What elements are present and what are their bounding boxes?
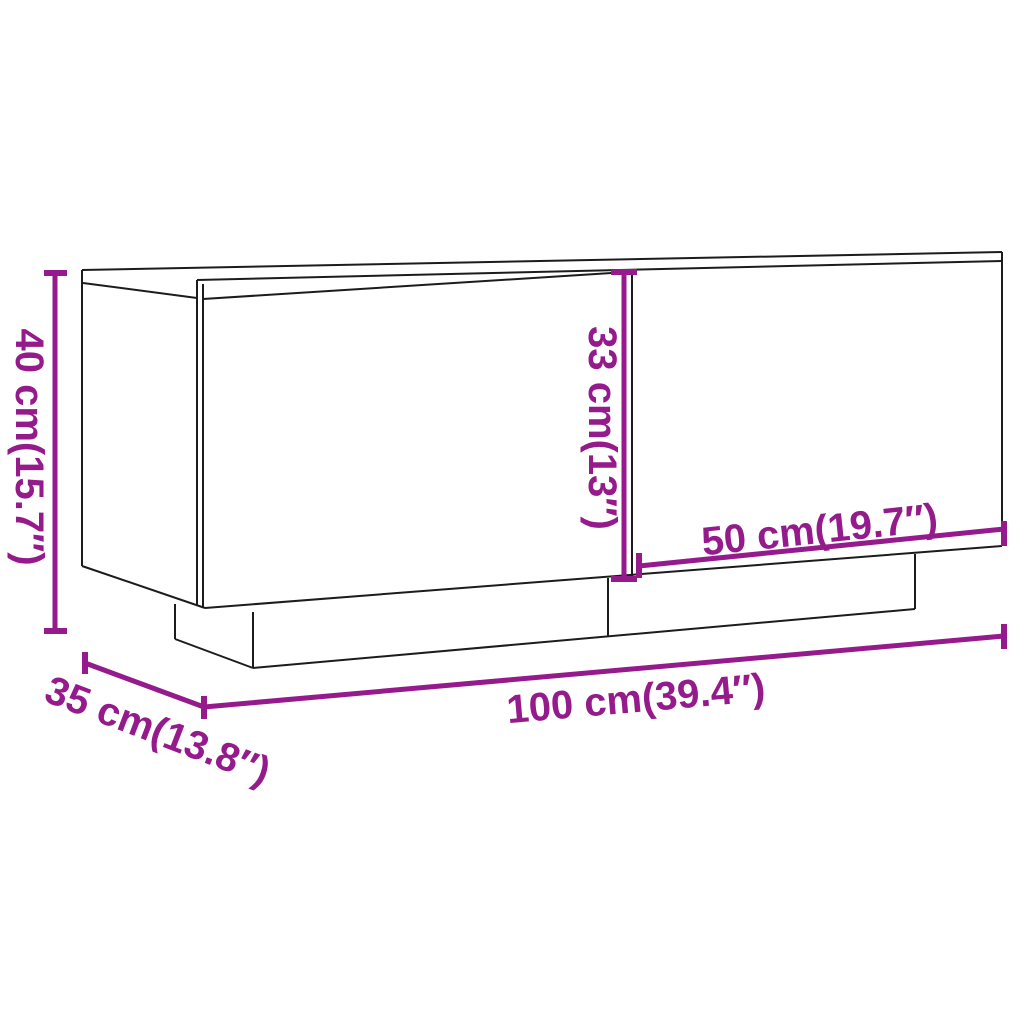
door-height-dimension-label: 33 cm(13″) (580, 326, 624, 530)
plinth-bottom-edge (253, 609, 915, 668)
height-dimension-label: 40 cm(15.7″) (7, 328, 51, 565)
cabinet-door-top-edge (203, 272, 627, 299)
cabinet-outline (82, 252, 1002, 668)
dimension-height: 40 cm(15.7″) (7, 273, 67, 631)
cabinet-door-bottom-edge (205, 546, 1002, 608)
cabinet-drawing: 40 cm(15.7″) 33 cm(13″) 50 cm(19.7″) 100… (0, 0, 1024, 1024)
dimension-door-height: 33 cm(13″) (580, 272, 637, 579)
cabinet-left-bottom-edge (82, 566, 205, 608)
cabinet-front-left-edge (197, 280, 203, 607)
cabinet-top-front-edge (197, 261, 1002, 280)
dimension-width: 100 cm(39.4″) (204, 624, 1004, 732)
cabinet-top-left-edge (83, 283, 197, 298)
furniture-dimension-diagram: 40 cm(15.7″) 33 cm(13″) 50 cm(19.7″) 100… (0, 0, 1024, 1024)
dimension-depth: 35 cm(13.8″) (39, 652, 276, 794)
dimension-door-width: 50 cm(19.7″) (639, 496, 1004, 578)
cabinet-top-back-edge (82, 252, 1002, 270)
plinth-left-bottom-edge (175, 639, 253, 668)
depth-dimension-label: 35 cm(13.8″) (39, 668, 276, 794)
